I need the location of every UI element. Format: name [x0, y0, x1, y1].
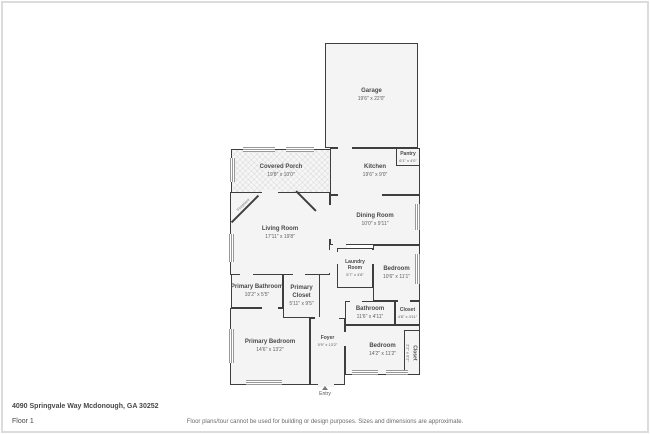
door-opening — [293, 272, 305, 277]
window-marker — [352, 370, 378, 375]
door-opening — [350, 299, 362, 303]
room-label: Living Room 17'11" x 19'8" — [262, 226, 298, 240]
window-marker — [415, 254, 420, 284]
window-marker — [386, 370, 408, 375]
entry-label: Entry — [305, 391, 345, 397]
door-opening — [336, 252, 340, 264]
room-primary-bathroom: Primary Bathroom 10'2" x 5'5" — [231, 274, 283, 308]
window-marker — [286, 147, 314, 152]
room-bedroom-middle: Bedroom 10'6" x 11'1" — [373, 245, 420, 301]
door-opening — [342, 332, 347, 346]
fireplace-label: Fireplace — [229, 191, 257, 219]
room-label: Primary Closet 5'11" x 9'5" — [284, 285, 319, 307]
room-label: Pantry 6'1" x 4'0" — [399, 151, 417, 163]
room-primary-closet: Primary Closet 5'11" x 9'5" — [283, 274, 320, 318]
door-opening — [262, 306, 278, 311]
room-laundry-room: Laundry Room 5'7" x 4'8" — [337, 248, 373, 288]
room-label: Kitchen 19'6" x 9'0" — [363, 164, 388, 178]
room-garage: Garage 19'6" x 22'0" — [325, 43, 418, 148]
room-bathroom: Bathroom 11'6" x 4'11" — [345, 301, 395, 325]
window-marker — [229, 329, 234, 363]
room-label: Bathroom 11'6" x 4'11" — [356, 306, 384, 320]
room-label: Covered Porch 19'8" x 10'0" — [260, 164, 303, 178]
room-label: Foyer 5'9" x 13'2" — [318, 319, 338, 347]
room-label: Primary Bathroom 10'2" x 5'5" — [231, 284, 283, 298]
room-foyer: Foyer 5'9" x 13'2" — [310, 318, 345, 385]
room-label: Primary Bedroom 14'6" x 13'2" — [245, 339, 295, 353]
entry-arrow-icon — [322, 386, 328, 390]
window-marker — [415, 204, 420, 230]
room-label: Closet 4'8" x 4'11" — [398, 307, 417, 319]
room-label: Closet 2'2" x 9'2" — [406, 344, 418, 362]
door-opening — [315, 317, 339, 321]
door-opening — [328, 250, 332, 273]
window-marker — [246, 380, 282, 385]
door-opening — [338, 193, 382, 197]
property-address: 4090 Springvale Way Mcdonough, GA 30252 — [12, 403, 159, 410]
door-opening — [398, 299, 410, 303]
fireplace: Fireplace — [231, 193, 261, 223]
room-closet-vertical: Closet 2'2" x 9'2" — [404, 330, 420, 375]
room-closet: Closet 4'8" x 4'11" — [395, 301, 420, 325]
window-marker — [230, 158, 235, 182]
door-opening — [371, 250, 375, 264]
room-covered-porch: Covered Porch 19'8" x 10'0" — [231, 149, 331, 193]
room-label: Bedroom 14'2" x 11'2" — [369, 343, 396, 357]
door-opening — [328, 205, 332, 239]
room-label: Laundry Room 5'7" x 4'8" — [338, 259, 372, 277]
window-marker — [229, 234, 234, 262]
room-label: Garage 19'6" x 22'0" — [358, 88, 385, 102]
door-opening — [338, 146, 352, 150]
window-marker — [243, 147, 275, 152]
door-opening — [333, 243, 346, 247]
room-label: Bedroom 10'6" x 11'1" — [383, 266, 410, 280]
room-primary-bedroom: Primary Bedroom 14'6" x 13'2" — [230, 308, 310, 385]
door-opening — [262, 190, 278, 195]
door-opening — [240, 272, 253, 276]
room-dining-room: Dining Room 10'0" x 9'11" — [330, 195, 420, 245]
room-label: Dining Room 10'0" x 9'11" — [356, 213, 393, 227]
disclaimer-text: Floor plans/tour cannot be used for buil… — [0, 419, 650, 425]
room-pantry: Pantry 6'1" x 4'0" — [396, 148, 420, 166]
